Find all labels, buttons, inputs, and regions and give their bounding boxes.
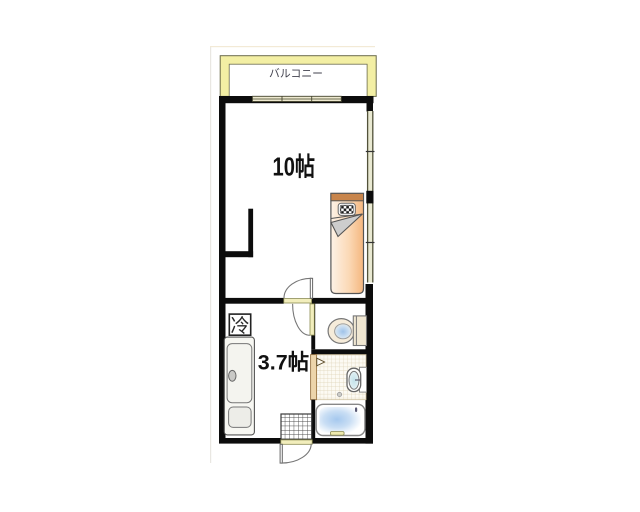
svg-text:バルコニー: バルコニー — [269, 67, 323, 80]
svg-text:10帖: 10帖 — [273, 154, 316, 182]
svg-text:3.7帖: 3.7帖 — [258, 351, 309, 375]
svg-text:冷: 冷 — [230, 315, 249, 337]
